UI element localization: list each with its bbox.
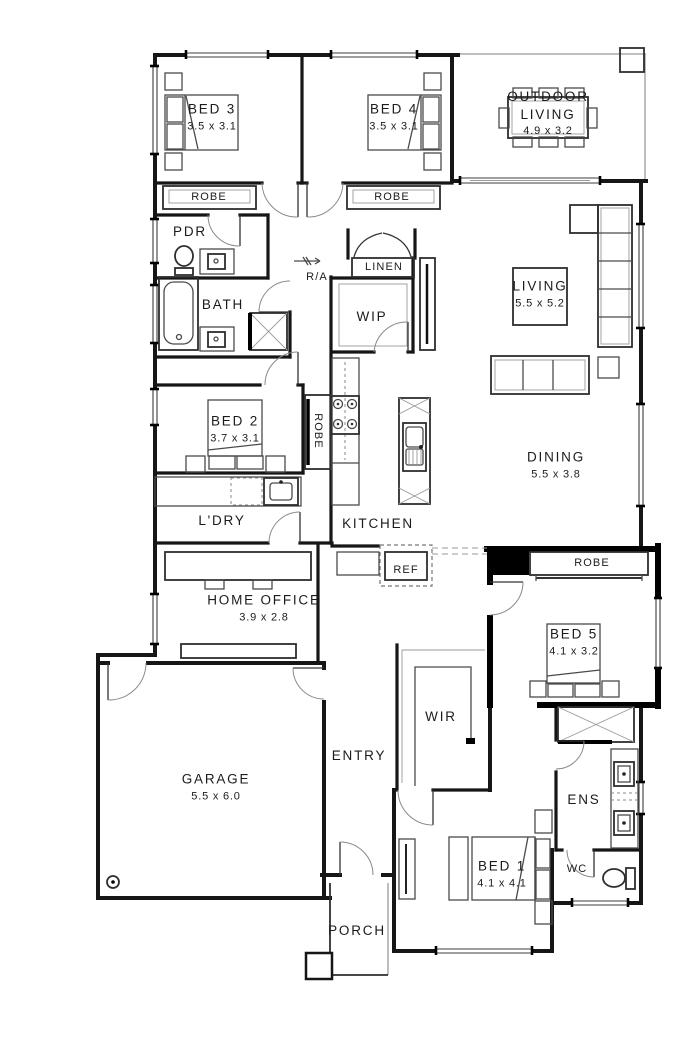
room-label-kitchen: KITCHEN xyxy=(342,515,414,533)
room-name: REF xyxy=(393,563,418,577)
window-home-office-left xyxy=(150,594,159,644)
room-dims: 3.7 x 3.1 xyxy=(210,431,259,445)
room-label-living: LIVING5.5 x 5.2 xyxy=(512,278,567,311)
hall-cabinet xyxy=(420,258,435,350)
room-label-robe-bed2: ROBE xyxy=(311,413,325,449)
laundry-door xyxy=(269,512,300,543)
room-label-bed3: BED 33.5 x 3.1 xyxy=(187,101,236,134)
room-name: WIR xyxy=(425,708,457,726)
bath-door xyxy=(259,281,290,312)
room-dims: 4.1 x 4.1 xyxy=(477,876,526,890)
room-name: R/A xyxy=(306,270,328,284)
room-name: BED 1 xyxy=(477,858,526,876)
room-label-bed1: BED 14.1 x 4.1 xyxy=(477,858,526,891)
room-label-entry: ENTRY xyxy=(332,747,387,765)
front-door xyxy=(340,842,373,875)
window-bed1-bottom xyxy=(436,946,532,955)
bed1-symbol xyxy=(399,810,552,924)
room-name: ENS xyxy=(567,791,600,809)
pdr-door xyxy=(208,215,240,246)
room-name: WC xyxy=(567,862,588,876)
room-name: KITCHEN xyxy=(342,515,414,533)
room-label-wip: WIP xyxy=(357,308,388,326)
room-name: ROBE xyxy=(374,190,410,204)
room-name: BED 2 xyxy=(210,413,259,431)
room-label-return-air: R/A xyxy=(306,270,328,284)
room-name: WIP xyxy=(357,308,388,326)
room-label-porch: PORCH xyxy=(328,922,386,940)
room-name: PDR xyxy=(173,223,207,241)
room-name: LIVING xyxy=(512,278,567,296)
window-wc-bottom xyxy=(572,898,628,907)
room-label-bath: BATH xyxy=(202,296,244,314)
room-label-bed2: BED 23.7 x 3.1 xyxy=(210,413,259,446)
room-name: DINING xyxy=(527,449,585,467)
wc-toilet xyxy=(603,868,635,889)
room-dims: 5.5 x 5.2 xyxy=(512,296,567,310)
room-label-home-office: HOME OFFICE3.9 x 2.8 xyxy=(207,592,321,625)
hall-bench xyxy=(337,552,379,575)
bed3-door xyxy=(262,183,298,217)
bath-shower xyxy=(250,313,287,350)
window-bed5-right xyxy=(654,598,662,668)
outdoor-column xyxy=(620,48,644,72)
window-bed4-top xyxy=(331,50,417,59)
bathtub xyxy=(159,277,198,350)
room-dims: 3.5 x 3.1 xyxy=(369,119,418,133)
window-bed3-top xyxy=(186,50,268,59)
room-name: PORCH xyxy=(328,922,386,940)
room-label-ens: ENS xyxy=(567,791,600,809)
garage-rear-door xyxy=(108,663,146,700)
hall-to-bed1-door xyxy=(398,790,433,825)
room-label-dining: DINING5.5 x 3.8 xyxy=(527,449,585,482)
room-dims: 3.9 x 2.8 xyxy=(207,610,321,624)
room-dims: 4.1 x 3.2 xyxy=(549,644,598,658)
floor-plan: BED 33.5 x 3.1 BED 43.5 x 3.1 OUTDOOR LI… xyxy=(0,0,700,1045)
sliding-door-outdoor-living xyxy=(460,176,600,185)
pdr-toilet xyxy=(175,246,193,275)
room-label-pdr: PDR xyxy=(173,223,207,241)
window-bed2-left xyxy=(150,389,159,425)
room-dims: 4.9 x 3.2 xyxy=(501,124,595,138)
room-label-wir: WIR xyxy=(425,708,457,726)
room-label-outdoor-living: OUTDOOR LIVING4.9 x 3.2 xyxy=(501,88,595,138)
room-dims: 5.5 x 6.0 xyxy=(182,789,251,803)
garage-entry-door xyxy=(293,668,324,699)
room-name: ROBE xyxy=(574,556,610,570)
return-air-arrow xyxy=(294,257,320,265)
bulkhead-dashed-lines xyxy=(432,548,487,554)
room-name: GARAGE xyxy=(182,771,251,789)
room-label-bed4: BED 43.5 x 3.1 xyxy=(369,101,418,134)
bath-vanity xyxy=(200,327,234,351)
room-dims: 5.5 x 3.8 xyxy=(527,467,585,481)
room-label-bed5: BED 54.1 x 3.2 xyxy=(549,626,598,659)
room-name: LINEN xyxy=(365,260,403,274)
exterior-walls xyxy=(98,55,646,951)
window-pdr-left xyxy=(150,219,159,263)
room-name: L'DRY xyxy=(198,512,245,530)
linen-doors xyxy=(354,233,411,257)
window-bed3-left xyxy=(150,66,159,154)
ens-shower xyxy=(558,707,634,742)
room-label-ref: REF xyxy=(393,563,418,577)
room-label-wc: WC xyxy=(567,862,588,876)
room-label-robe-bed5: ROBE xyxy=(574,556,610,570)
room-name: OUTDOOR LIVING xyxy=(501,88,595,123)
garage-floor-waste xyxy=(107,876,119,888)
room-label-garage: GARAGE5.5 x 6.0 xyxy=(182,771,251,804)
ens-door xyxy=(556,741,584,769)
room-name: BED 4 xyxy=(369,101,418,119)
window-ens-right xyxy=(636,782,645,814)
room-label-robe-bed3: ROBE xyxy=(191,190,227,204)
window-dining-right xyxy=(636,404,645,506)
living-sofa xyxy=(491,356,619,394)
room-dims: 3.5 x 3.1 xyxy=(187,119,236,133)
room-name: ENTRY xyxy=(332,747,387,765)
window-living-right xyxy=(636,224,645,328)
room-name: BATH xyxy=(202,296,244,314)
bed5-door xyxy=(490,582,523,615)
pdr-vanity xyxy=(200,249,234,274)
window-bath-left xyxy=(150,285,159,343)
room-name: HOME OFFICE xyxy=(207,592,321,610)
island-sink xyxy=(403,423,426,471)
kitchen-bench xyxy=(332,358,359,505)
room-label-ldry: L'DRY xyxy=(198,512,245,530)
laundry-bench xyxy=(155,477,301,506)
room-name: BED 3 xyxy=(187,101,236,119)
ens-vanity xyxy=(611,749,638,848)
bed4-door xyxy=(307,183,343,217)
room-name: BED 5 xyxy=(549,626,598,644)
wip-door xyxy=(374,322,408,352)
room-label-linen: LINEN xyxy=(365,260,403,274)
room-name: ROBE xyxy=(311,413,325,449)
room-name: ROBE xyxy=(191,190,227,204)
room-label-robe-bed4: ROBE xyxy=(374,190,410,204)
living-corner-sofa xyxy=(570,205,632,347)
